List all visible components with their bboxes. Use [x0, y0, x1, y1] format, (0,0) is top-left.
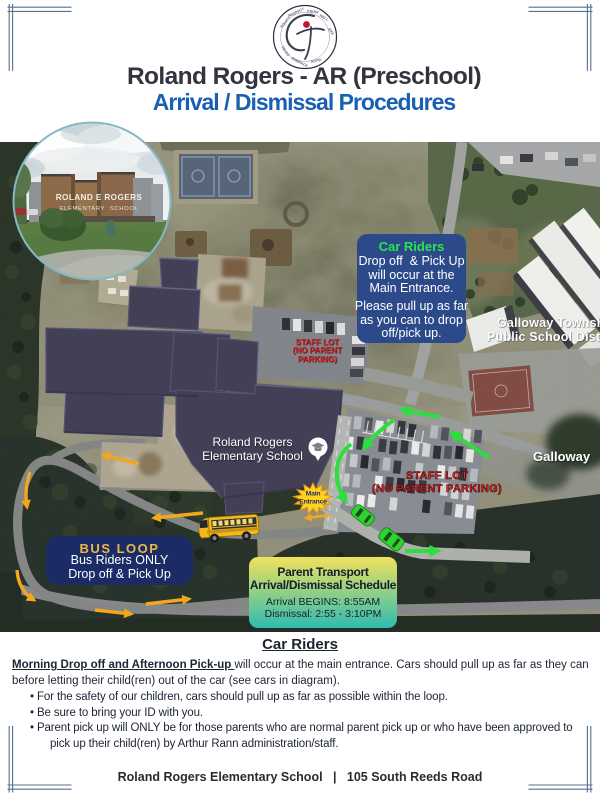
svg-text:ROLAND E ROGERS: ROLAND E ROGERS	[56, 193, 143, 202]
svg-text:Main: Main	[306, 491, 321, 498]
svg-text:Entrance: Entrance	[299, 499, 327, 506]
